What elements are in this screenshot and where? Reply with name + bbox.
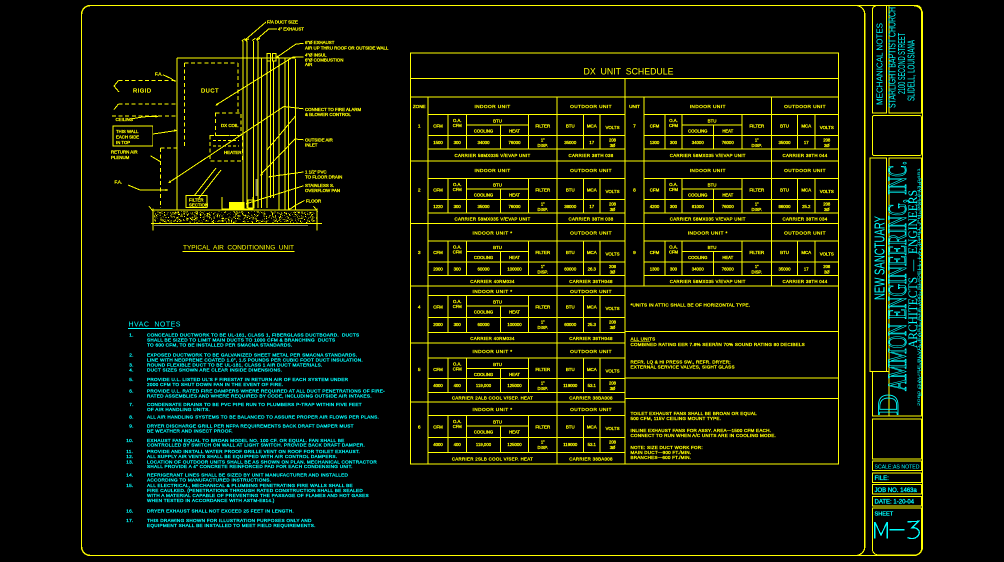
svg-text:E-MAIL: DAMMONENGINEERING@BELL: E-MAIL: DAMMONENGINEERING@BELLSOUTH.NET … [919,178,923,396]
svg-text:CFM: CFM [433,305,443,310]
svg-text:400: 400 [454,383,462,388]
svg-text:OUTDOOR UNIT: OUTDOOR UNIT [784,168,826,174]
svg-text:INDOOR UNIT *: INDOOR UNIT * [472,349,512,355]
svg-text:17.: 17. [126,518,133,523]
svg-text:8.: 8. [129,415,133,420]
svg-text:BE WEATHER AND INSECT PROOF.: BE WEATHER AND INSECT PROOF. [147,428,233,433]
svg-text:60000: 60000 [478,322,491,327]
svg-text:FILTER: FILTER [535,425,550,430]
svg-text:76000: 76000 [509,204,522,209]
svg-text:CFM: CFM [453,187,463,192]
svg-text:VOLTS: VOLTS [605,306,619,311]
svg-text:CONNECT TO RUN WHEN A/C UNITS: CONNECT TO RUN WHEN A/C UNITS ARE IN COO… [631,433,777,438]
svg-text:AIR: AIR [305,62,312,67]
svg-text:CFM: CFM [433,188,443,193]
svg-text:WHEN TESTED IN ACCORDANCE WITH: WHEN TESTED IN ACCORDANCE WITH ASTM-E814… [147,498,275,503]
svg-text:4.: 4. [129,367,133,372]
svg-text:12.: 12. [126,454,133,459]
svg-text:HEAT: HEAT [509,255,520,260]
svg-text:CARRIER 38BA008: CARRIER 38BA008 [569,456,613,461]
svg-text:26.3: 26.3 [588,267,597,272]
svg-text:BTU: BTU [493,362,502,367]
svg-text:OUTDOOR UNIT: OUTDOOR UNIT [784,231,826,237]
svg-text:HEAT: HEAT [509,193,520,198]
svg-text:RIGID: RIGID [133,88,152,94]
svg-text:UNIT: UNIT [629,104,640,109]
svg-text:1220: 1220 [433,204,443,209]
svg-text:BTU: BTU [566,425,575,430]
svg-text:CFM: CFM [669,250,679,255]
svg-text:DX UNIT SCHEDULE: DX UNIT SCHEDULE [584,66,674,77]
svg-text:76000: 76000 [722,204,735,209]
svg-text:MCA: MCA [587,305,597,310]
svg-text:BTU: BTU [708,119,717,124]
svg-text:125000: 125000 [507,442,522,447]
svg-text:119000: 119000 [563,383,578,388]
svg-text:MCA: MCA [587,250,597,255]
svg-text:TO FLOOR DRAIN: TO FLOOR DRAIN [305,175,342,180]
svg-text:500 CFM, 115V CEILING MOUNT TY: 500 CFM, 115V CEILING MOUNT TYPE. [631,416,722,421]
svg-text:HEAT: HEAT [722,129,733,134]
svg-text:CONTROLLED BY SWITCH ON WALL A: CONTROLLED BY SWITCH ON WALL AT LIGHT SW… [147,443,365,448]
svg-text:76000: 76000 [722,140,735,145]
svg-text:VOLTS: VOLTS [605,369,619,374]
svg-text:OF AIR HANDLING UNITS.: OF AIR HANDLING UNITS. [147,407,210,412]
svg-text:35000: 35000 [779,267,792,272]
svg-text:DX COIL: DX COIL [221,123,239,128]
svg-text:OVERFLOW PAN: OVERFLOW PAN [305,188,340,193]
svg-text:CARRIER 2ALB COOL V/SEP. HEAT: CARRIER 2ALB COOL V/SEP. HEAT [452,395,533,400]
svg-text:4000: 4000 [433,442,443,447]
svg-text:CARRIER 38TH048: CARRIER 38TH048 [569,336,613,341]
svg-text:FILTER: FILTER [749,124,764,129]
svg-text:BTU: BTU [566,367,575,372]
svg-text:6.: 6. [129,389,133,394]
svg-text:FILTER: FILTER [535,250,550,255]
svg-text:BTU: BTU [708,245,717,250]
svg-text:3Ø: 3Ø [610,386,616,391]
svg-text:BTU: BTU [566,124,575,129]
svg-text:4" EXHAUST: 4" EXHAUST [278,27,304,32]
svg-text:86000: 86000 [779,204,792,209]
svg-text:CFM: CFM [453,250,463,255]
svg-text:38000: 38000 [564,204,577,209]
svg-text:60000: 60000 [478,267,491,272]
svg-text:9: 9 [633,250,636,256]
svg-text:119,000: 119,000 [476,442,492,447]
svg-text:COOLING: COOLING [474,193,493,198]
svg-text:VOLTS: VOLTS [820,125,834,130]
svg-text:25.3: 25.3 [588,322,597,327]
svg-text:INDOOR UNIT *: INDOOR UNIT * [688,231,728,237]
svg-text:TYPICAL AIR CONDITIONING UN: TYPICAL AIR CONDITIONING UNIT [183,245,294,252]
svg-text:16.: 16. [126,509,133,514]
svg-text:DUCT SIZES SHOWN ARE CLEAR INS: DUCT SIZES SHOWN ARE CLEAR INSIDE DIMENS… [147,367,282,372]
svg-text:BTU: BTU [493,119,502,124]
svg-text:COOLING: COOLING [688,255,707,260]
svg-text:ALL AIR HANDLING SYSTEMS TO BE: ALL AIR HANDLING SYSTEMS TO BE BALANCED … [147,415,379,420]
svg-text:100000: 100000 [507,322,522,327]
svg-text:SECTION: SECTION [189,202,208,207]
svg-text:CFM: CFM [433,250,443,255]
svg-text:15.: 15. [126,483,133,488]
svg-text:RATED ASSEMBLIES AND WHERE REQ: RATED ASSEMBLIES AND WHERE REQUIRED BY C… [147,394,372,399]
svg-text:9.: 9. [129,424,133,429]
svg-text:81000: 81000 [692,204,705,209]
svg-text:76000: 76000 [722,267,735,272]
svg-text:OUTDOOR UNIT: OUTDOOR UNIT [784,104,826,110]
svg-text:HEAT: HEAT [509,430,520,435]
svg-text:FILTER: FILTER [535,124,550,129]
svg-text:119,000: 119,000 [476,383,492,388]
svg-text:DISP.: DISP. [752,143,762,148]
svg-text:4200: 4200 [650,204,660,209]
svg-text:OUTDOOR UNIT: OUTDOOR UNIT [570,289,612,295]
svg-text:CARRIER 38TH 038: CARRIER 38TH 038 [568,216,613,221]
svg-text:119000: 119000 [563,442,578,447]
svg-text:7: 7 [633,124,636,130]
svg-text:17: 17 [804,140,809,145]
svg-text:6: 6 [418,425,421,431]
svg-text:DISP.: DISP. [538,143,548,148]
svg-text:COOLING: COOLING [688,193,707,198]
svg-text:CFM: CFM [453,304,463,309]
svg-text:DISP.: DISP. [538,207,548,212]
svg-text:1300: 1300 [650,140,660,145]
svg-text:CARRIER 2SLB COOL V/SEP. HEAT: CARRIER 2SLB COOL V/SEP. HEAT [452,456,533,461]
svg-text:2.: 2. [129,352,133,357]
svg-text:VOLTS: VOLTS [820,189,834,194]
svg-text:D: D [872,394,905,416]
svg-text:EACH SIDE: EACH SIDE [116,134,139,139]
svg-text:OUTDOOR UNIT: OUTDOOR UNIT [570,104,612,110]
svg-text:COOLING: COOLING [474,255,493,260]
svg-text:CARRIER 38TH 034: CARRIER 38TH 034 [782,216,827,221]
svg-text:CFM: CFM [453,123,463,128]
svg-text:CARRIER 38TH 044: CARRIER 38TH 044 [782,153,827,158]
svg-text:MCA: MCA [801,250,811,255]
svg-text:HVAC NOTES: HVAC NOTES [129,322,181,329]
svg-text:34000: 34000 [478,140,491,145]
svg-text:VOLTS: VOLTS [605,189,619,194]
svg-text:5.: 5. [129,377,133,382]
svg-text:COOLING: COOLING [474,310,493,315]
svg-text:VOLTS: VOLTS [605,125,619,130]
svg-text:DISP.: DISP. [752,269,762,274]
svg-text:FILTER: FILTER [535,367,550,372]
svg-text:HEAT: HEAT [722,193,733,198]
svg-text:F.A.: F.A. [115,180,123,185]
svg-text:34000: 34000 [692,140,705,145]
svg-text:CFM: CFM [453,424,463,429]
svg-text:BTU: BTU [780,124,789,129]
svg-text:1.: 1. [129,333,133,338]
svg-text:CARRIER 38TH 038: CARRIER 38TH 038 [568,153,613,158]
svg-text:INDOOR UNIT: INDOOR UNIT [474,104,510,110]
svg-text:300: 300 [454,322,462,327]
svg-text:SHALL PROVIDE A 4" CONCRETE RE: SHALL PROVIDE A 4" CONCRETE REINFORCED P… [147,464,353,469]
svg-text:60000: 60000 [564,267,577,272]
svg-text:BTU: BTU [493,420,502,425]
svg-text:125000: 125000 [507,383,522,388]
svg-text:HEATER: HEATER [224,150,241,155]
svg-text:HEAT: HEAT [509,129,520,134]
svg-text:4: 4 [418,305,421,311]
svg-text:BTU: BTU [493,300,502,305]
svg-text:CARRIER 58MX035 V/EVAP UNIT: CARRIER 58MX035 V/EVAP UNIT [670,279,746,284]
svg-text:2000: 2000 [433,322,443,327]
svg-text:3Ø: 3Ø [610,445,616,450]
svg-text:2000: 2000 [433,267,443,272]
svg-text:8: 8 [633,188,636,194]
svg-text:300: 300 [454,267,462,272]
svg-text:17: 17 [804,267,809,272]
svg-text:INDOOR UNIT *: INDOOR UNIT * [472,407,512,413]
svg-text:RETURN AIR: RETURN AIR [111,150,138,155]
svg-text:FLOOR: FLOOR [306,199,321,204]
svg-text:INLET: INLET [305,143,318,148]
svg-text:MECHANICAL NOTES: MECHANICAL NOTES [875,23,884,105]
svg-text:F.A.: F.A. [155,72,163,77]
svg-text:CARRIER 58MX035 V/EVAP UNIT: CARRIER 58MX035 V/EVAP UNIT [670,216,746,221]
svg-text:35000: 35000 [478,204,491,209]
svg-text:COOLING: COOLING [474,430,493,435]
svg-text:300: 300 [454,140,462,145]
svg-text:35000: 35000 [564,140,577,145]
svg-text:HEAT: HEAT [509,372,520,377]
svg-text:FILTER: FILTER [749,250,764,255]
svg-text:17: 17 [589,204,594,209]
svg-text:F/A DUCT SIZE: F/A DUCT SIZE [267,20,298,25]
svg-text:5: 5 [418,367,421,373]
svg-text:MCA: MCA [587,124,597,129]
svg-text:CFM: CFM [650,124,660,129]
svg-text:2000 CFM TO SHUT DOWN FAN IN T: 2000 CFM TO SHUT DOWN FAN IN THE EVENT O… [147,382,283,387]
svg-text:INDOOR UNIT: INDOOR UNIT [474,168,510,174]
svg-text:TO 600 CFM, TO BE INSTALLED PE: TO 600 CFM, TO BE INSTALLED PER SMACNA S… [147,343,292,348]
svg-text:COMBINED RATING EER 7.8% SEER/: COMBINED RATING EER 7.8% SEER/IN 70% SOU… [631,342,805,347]
svg-text:DISP.: DISP. [752,207,762,212]
svg-text:CFM: CFM [433,425,443,430]
svg-text:CFM: CFM [433,124,443,129]
svg-text:53.1: 53.1 [588,383,597,388]
svg-text:SCALE:AS NOTED: SCALE:AS NOTED [875,464,920,470]
svg-text:53.1: 53.1 [588,442,597,447]
svg-text:COOLING: COOLING [688,129,707,134]
svg-text:14.: 14. [126,472,133,477]
svg-text:INDOOR UNIT *: INDOOR UNIT * [472,289,512,295]
svg-text:300: 300 [670,267,678,272]
svg-text:100000: 100000 [507,267,522,272]
svg-text:AIR UP THRU ROOF OR OUTSIDE WA: AIR UP THRU ROOF OR OUTSIDE WALL [305,45,389,50]
svg-text:3Ø: 3Ø [610,325,616,330]
svg-text:EQUIPMENT SHALL BE INSTALLED T: EQUIPMENT SHALL BE INSTALLED TO MEET FIE… [147,523,316,528]
svg-text:EXTERNAL SERVICE VALVES, SIGHT: EXTERNAL SERVICE VALVES, SIGHT GLASS [631,364,735,369]
svg-text:BTU: BTU [493,183,502,188]
svg-text:DISP.: DISP. [538,386,548,391]
svg-text:35000: 35000 [779,140,792,145]
svg-text:FILE:: FILE: [875,476,890,482]
svg-text:BRANCHES—600 FT./MIN.: BRANCHES—600 FT./MIN. [631,455,692,460]
svg-text:DISP.: DISP. [538,269,548,274]
svg-text:BTU: BTU [780,188,789,193]
svg-text:& BLOWER CONTROL: & BLOWER CONTROL [305,112,351,117]
svg-text:VOLTS: VOLTS [605,252,619,257]
svg-text:BTU: BTU [566,250,575,255]
svg-text:3Ø: 3Ø [610,143,616,148]
svg-text:DATE: 1-20-04: DATE: 1-20-04 [875,500,915,506]
svg-text:CFM: CFM [650,250,660,255]
svg-text:THIS WALL: THIS WALL [116,129,139,134]
svg-text:PLENUM: PLENUM [111,155,130,160]
svg-text:CARRIER 38TH048: CARRIER 38TH048 [569,279,613,284]
svg-text:*UNITS IN ATTIC SHALL BE OF HO: *UNITS IN ATTIC SHALL BE OF HORIZONTAL T… [631,303,751,308]
svg-text:BTU: BTU [780,250,789,255]
svg-text:INDOOR UNIT *: INDOOR UNIT * [472,231,512,237]
svg-text:INDOOR UNIT: INDOOR UNIT [690,104,726,110]
svg-text:1300: 1300 [650,267,660,272]
svg-text:OUTDOOR UNIT: OUTDOOR UNIT [570,349,612,355]
svg-text:ZONE: ZONE [413,104,426,109]
svg-text:7.: 7. [129,402,133,407]
svg-text:INDOOR UNIT: INDOOR UNIT [690,168,726,174]
svg-text:76000: 76000 [509,140,522,145]
svg-text:HEAT: HEAT [722,255,733,260]
svg-text:3: 3 [418,250,421,256]
svg-text:2: 2 [418,188,421,194]
svg-text:IN TOP: IN TOP [116,140,130,145]
svg-text:3Ø: 3Ø [824,143,830,148]
svg-text:VOLTS: VOLTS [820,252,834,257]
svg-text:BTU: BTU [493,245,502,250]
svg-text:COOLING: COOLING [474,372,493,377]
svg-text:ACCORDING TO MANUFACTURED INST: ACCORDING TO MANUFACTURED INSTRUCTIONS. [147,477,271,482]
svg-text:CARRIER 38BA008: CARRIER 38BA008 [569,395,613,400]
svg-text:SLIDELL, LOUISIANA: SLIDELL, LOUISIANA [906,40,918,101]
svg-text:BTU: BTU [708,183,717,188]
svg-text:CARRIER 40RM034: CARRIER 40RM034 [470,279,515,284]
svg-text:VOLTS: VOLTS [605,426,619,431]
svg-text:3Ø: 3Ø [610,269,616,274]
svg-text:CEILING: CEILING [116,117,134,122]
svg-text:FILTER: FILTER [535,188,550,193]
svg-text:4000: 4000 [433,383,443,388]
svg-text:300: 300 [670,204,678,209]
svg-text:1500: 1500 [433,140,443,145]
svg-text:CFM: CFM [433,367,443,372]
svg-text:25.2: 25.2 [802,204,811,209]
svg-text:300: 300 [454,204,462,209]
svg-text:300: 300 [670,140,678,145]
svg-text:FILTER: FILTER [535,305,550,310]
svg-text:MCA: MCA [587,425,597,430]
svg-text:CARRIER 58MX035 V/EVAP UNIT: CARRIER 58MX035 V/EVAP UNIT [454,153,530,158]
svg-text:CFM: CFM [669,187,679,192]
svg-text:ALL SUPPLY AIR VENTS SHALL BE: ALL SUPPLY AIR VENTS SHALL BE EQUIPPED W… [147,454,337,459]
svg-text:1: 1 [418,124,421,130]
svg-text:DISP.: DISP. [538,445,548,450]
svg-text:MCA: MCA [801,124,811,129]
svg-text:CFM: CFM [669,123,679,128]
svg-text:13.: 13. [126,459,133,464]
svg-text:34000: 34000 [692,267,705,272]
svg-text:OUTDOOR UNIT: OUTDOOR UNIT [570,407,612,413]
svg-text:BTU: BTU [566,305,575,310]
svg-text:3Ø: 3Ø [824,207,830,212]
svg-text:OUTDOOR UNIT: OUTDOOR UNIT [570,168,612,174]
svg-text:OUTDOOR UNIT: OUTDOOR UNIT [570,231,612,237]
svg-text:CARRIER 40RM034: CARRIER 40RM034 [470,336,515,341]
svg-text:BTU: BTU [566,188,575,193]
svg-text:CFM: CFM [453,367,463,372]
svg-text:3Ø: 3Ø [610,207,616,212]
svg-text:CARRIER 58MX035 V/EVAP UNIT: CARRIER 58MX035 V/EVAP UNIT [670,153,746,158]
svg-text:60000: 60000 [564,322,577,327]
svg-text:17: 17 [589,140,594,145]
svg-text:HEAT: HEAT [509,310,520,315]
svg-text:JOB NO. 1463a: JOB NO. 1463a [875,488,918,494]
svg-text:MCA: MCA [587,188,597,193]
svg-text:CARRIER 38TH 044: CARRIER 38TH 044 [782,279,827,284]
svg-text:DRYER EXHAUST SHALL NOT EXCEED: DRYER EXHAUST SHALL NOT EXCEED 25 FEET I… [147,509,294,514]
svg-text:10.: 10. [126,438,133,443]
svg-text:MCA: MCA [587,367,597,372]
svg-text:DUCT: DUCT [201,88,219,94]
svg-text:CFM: CFM [650,188,660,193]
svg-text:DISP.: DISP. [538,325,548,330]
svg-text:400: 400 [454,442,462,447]
svg-text:FILTER: FILTER [749,188,764,193]
svg-text:COOLING: COOLING [474,129,493,134]
svg-text:SHEET: SHEET [875,512,894,518]
svg-text:CARRIER 58MX035 V/EVAP UNIT: CARRIER 58MX035 V/EVAP UNIT [454,216,530,221]
svg-text:MCA: MCA [801,188,811,193]
svg-text:3Ø: 3Ø [824,269,830,274]
